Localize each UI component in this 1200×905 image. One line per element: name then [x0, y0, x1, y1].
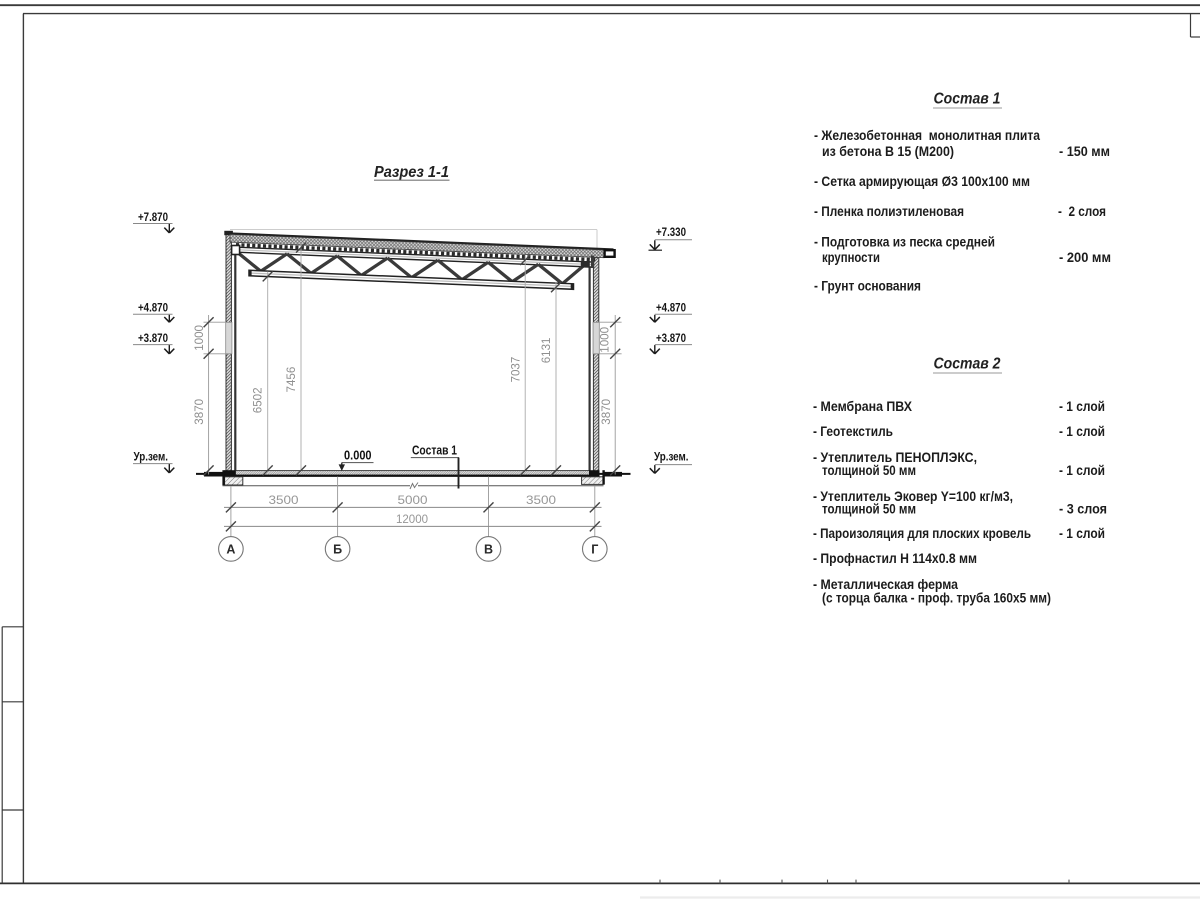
svg-text:Б: Б — [333, 543, 342, 557]
svg-text:- 3 слоя: - 3 слоя — [1059, 501, 1107, 516]
svg-text:6502: 6502 — [252, 387, 265, 413]
svg-text:Ур.зем.: Ур.зем. — [134, 450, 169, 464]
svg-text:- 150 мм: - 150 мм — [1059, 144, 1110, 159]
svg-text:- Пленка полиэтиленовая: - Пленка полиэтиленовая — [814, 204, 964, 219]
svg-text:- Геотекстиль: - Геотекстиль — [813, 424, 893, 439]
svg-text:12000: 12000 — [396, 512, 428, 526]
svg-text:- Мембрана ПВХ: - Мембрана ПВХ — [813, 399, 912, 414]
svg-text:В: В — [484, 543, 493, 557]
svg-text:- 1 слой: - 1 слой — [1059, 463, 1105, 478]
svg-text:+4.870: +4.870 — [138, 301, 168, 315]
svg-text:- Грунт основания: - Грунт основания — [814, 279, 921, 294]
svg-text:5000: 5000 — [398, 493, 428, 507]
svg-text:- 200 мм: - 200 мм — [1059, 250, 1111, 265]
svg-text:(с торца балка - проф. труба 1: (с торца балка - проф. труба 160x5 мм) — [822, 590, 1051, 605]
svg-text:- 1 слой: - 1 слой — [1059, 526, 1105, 541]
svg-text:3870: 3870 — [193, 399, 206, 425]
svg-text:толщиной 50 мм: толщиной 50 мм — [822, 501, 916, 516]
svg-text:+3.870: +3.870 — [138, 331, 168, 345]
svg-text:- Сетка армирующая Ø3 100x100: - Сетка армирующая Ø3 100x100 мм — [814, 174, 1030, 189]
svg-text:+3.870: +3.870 — [656, 331, 686, 345]
svg-text:Г: Г — [591, 543, 598, 557]
svg-text:А: А — [226, 543, 235, 557]
svg-text:- Железобетонная монолитная п: - Железобетонная монолитная плита — [814, 128, 1040, 143]
svg-text:толщиной 50 мм: толщиной 50 мм — [822, 463, 916, 478]
svg-text:0.000: 0.000 — [344, 448, 372, 463]
svg-text:Разрез 1-1: Разрез 1-1 — [374, 164, 449, 181]
svg-text:3500: 3500 — [269, 493, 299, 507]
svg-text:- 2 слоя: - 2 слоя — [1058, 204, 1106, 219]
svg-text:1000: 1000 — [598, 327, 611, 353]
svg-text:+7.870: +7.870 — [138, 210, 168, 224]
svg-text:7037: 7037 — [509, 357, 522, 383]
svg-text:- Подготовка из песка средней: - Подготовка из песка средней — [814, 235, 995, 250]
svg-text:1000: 1000 — [193, 325, 206, 351]
svg-text:из бетона В 15 (М200): из бетона В 15 (М200) — [822, 144, 954, 159]
svg-text:- 1 слой: - 1 слой — [1059, 399, 1105, 414]
svg-text:- 1 слой: - 1 слой — [1059, 424, 1105, 439]
svg-text:7456: 7456 — [285, 367, 298, 393]
svg-text:- Пароизоляция для плоских кро: - Пароизоляция для плоских кровель — [813, 526, 1031, 541]
svg-text:- Профнастил Н 114x0.8 мм: - Профнастил Н 114x0.8 мм — [813, 551, 977, 566]
svg-text:Ур.зем.: Ур.зем. — [654, 450, 689, 464]
svg-text:+4.870: +4.870 — [656, 301, 686, 315]
svg-text:крупности: крупности — [822, 250, 880, 265]
svg-text:3870: 3870 — [600, 399, 613, 425]
svg-text:+7.330: +7.330 — [656, 225, 686, 239]
svg-text:6131: 6131 — [540, 338, 553, 364]
svg-text:Состав 2: Состав 2 — [934, 356, 1001, 373]
svg-text:Состав 1: Состав 1 — [934, 91, 1001, 108]
svg-text:3500: 3500 — [526, 493, 556, 507]
svg-text:Состав 1: Состав 1 — [412, 443, 457, 458]
